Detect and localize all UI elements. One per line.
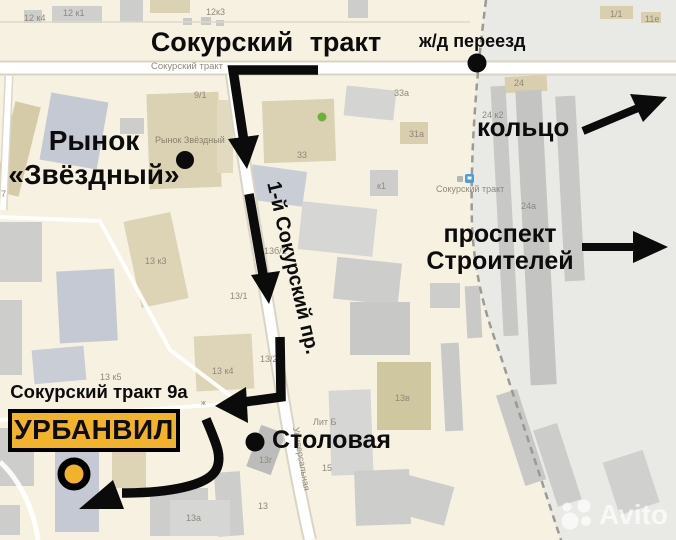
railway-crossing-dot-marker xyxy=(468,54,487,73)
main-road-title: Сокурский тракт xyxy=(140,28,392,57)
prospect-line2: Строителей xyxy=(426,247,573,275)
arrowhead-down-1 xyxy=(228,135,259,169)
route-arrow-2-line xyxy=(249,194,264,280)
destination-circle-marker xyxy=(61,461,87,487)
prospect-arrowhead xyxy=(633,231,668,263)
avito-watermark-text: Avito xyxy=(599,501,668,529)
direction-arrows xyxy=(582,94,668,263)
arrowhead-left xyxy=(215,387,248,423)
avito-logo-icon xyxy=(559,498,595,532)
destination-name-box: УРБАНВИЛ xyxy=(8,409,180,452)
canteen-label: Столовая xyxy=(272,427,391,454)
route-arrow-1-line xyxy=(233,70,318,142)
prospect-label: проспект Строителей xyxy=(416,221,584,275)
market-line1: Рынок xyxy=(49,125,140,156)
destination-address: Сокурский тракт 9а xyxy=(0,382,198,402)
market-line2: «Звёздный» xyxy=(8,159,179,190)
map-canvas: 12 к4 12 к1 12к3 1/1 11е 9/1 33а 31а 33 … xyxy=(0,0,676,540)
arrowhead-down-2 xyxy=(251,271,280,304)
ring-arrow-line xyxy=(583,108,638,131)
route-arrow-3-line xyxy=(244,337,281,402)
railway-crossing-label: ж/д переезд xyxy=(419,32,525,51)
ring-label: кольцо xyxy=(477,113,569,141)
canteen-dot-marker xyxy=(246,433,265,452)
market-label: Рынок «Звёздный» xyxy=(0,124,188,192)
avito-watermark: Avito xyxy=(559,498,668,532)
prospect-line1: проспект xyxy=(444,220,557,248)
